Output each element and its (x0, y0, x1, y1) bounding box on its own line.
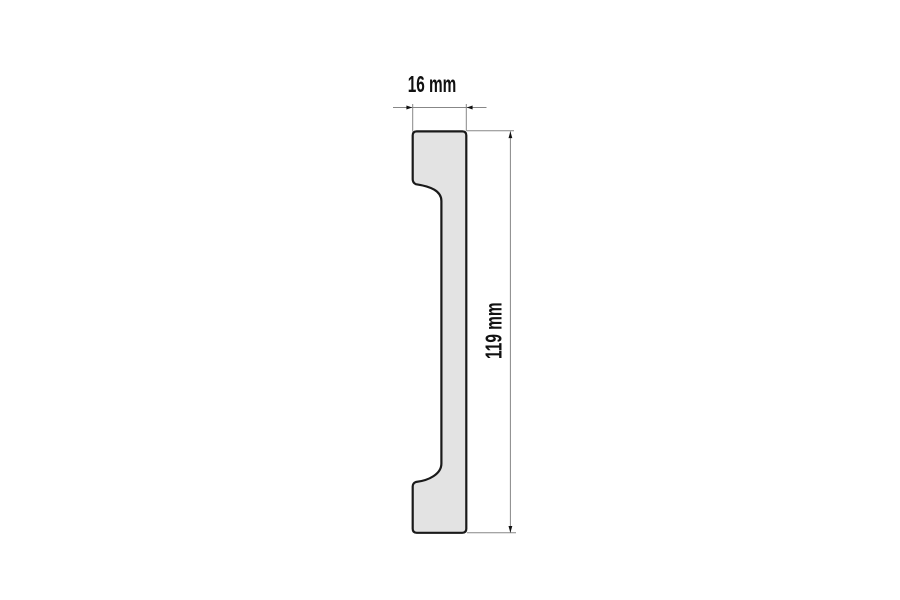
svg-text:119 mm: 119 mm (480, 302, 506, 359)
svg-text:16 mm: 16 mm (408, 71, 457, 97)
